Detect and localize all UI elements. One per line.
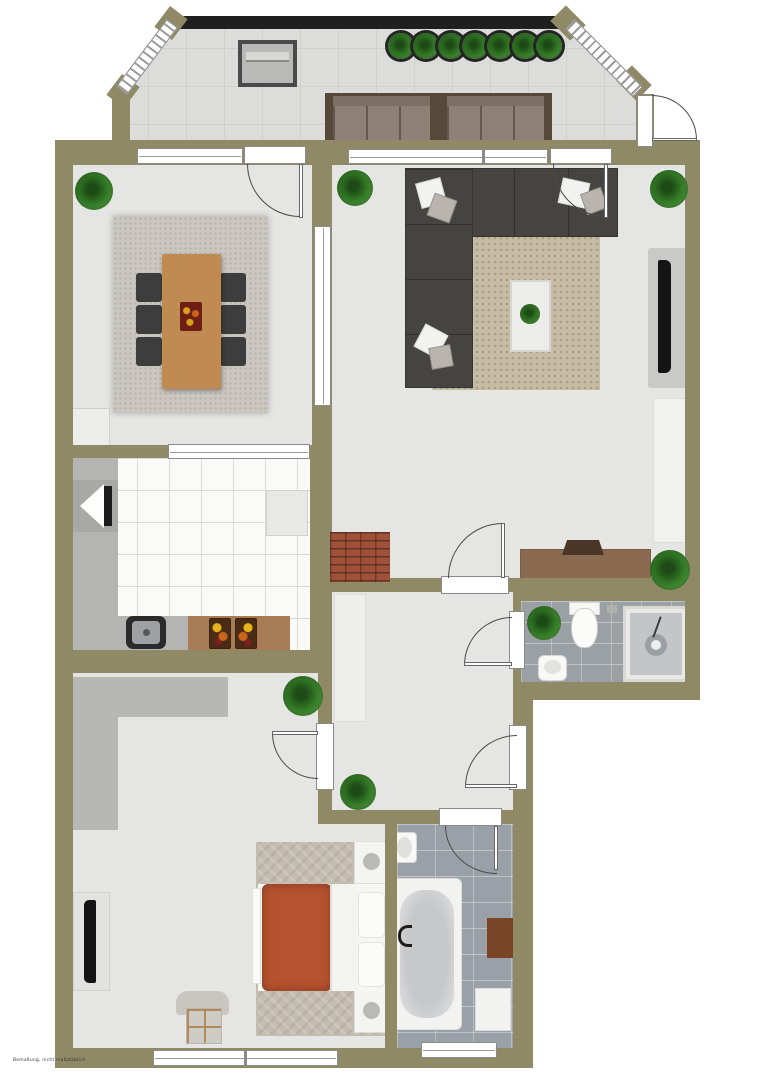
bed-pillow [358,942,385,987]
wc-bottom-wall [513,682,700,700]
laptop-icon [562,540,604,555]
cutting-board [235,618,257,649]
coffee-table-flowers [520,304,540,324]
cutting-board [209,618,231,649]
bathroom-sink-bowl [397,837,412,858]
storage-box-lid [246,52,289,62]
storage-box [238,40,297,87]
exterior-wall-right [685,140,700,700]
bedroom-door-frame [316,723,334,790]
bath-mat [487,918,513,958]
dining-chair [220,273,246,302]
nightstand-lamp [363,1002,380,1019]
outdoor-sofa-cushions [333,96,430,144]
outdoor-sofa-cushions [447,96,544,144]
dining-living-interior-window [314,226,331,406]
bedroom-door-leaf [272,731,318,735]
balcony-side-door-arc [652,95,697,140]
exterior-wall-left [55,140,73,1068]
tv-icon [658,260,671,373]
bathroom-window [421,1042,497,1058]
balcony-railing [180,16,563,29]
nightstand-lamp [363,853,380,870]
bathtub-faucet [398,925,412,947]
bathroom-door-leaf [494,826,498,870]
kitchen-living-wall [310,458,332,650]
washing-machine [475,988,511,1031]
bedroom-tv-icon [84,900,96,983]
dining-chair [136,273,162,302]
living-balcony-window [348,149,548,164]
bed-pillow [358,892,385,938]
dining-chair [136,337,162,366]
balcony-side-door-leaf [652,138,697,141]
window-mullion [482,149,485,164]
potted-plant [487,33,513,59]
kitchen-faucet [143,629,150,636]
potted-plant [462,33,488,59]
dining-balcony-door-leaf [299,164,303,218]
table-centerpiece [180,302,202,331]
dining-balcony-window [137,148,243,164]
bed-footboard [252,888,261,984]
potted-plant [413,33,439,59]
bathroom-door-frame [439,808,502,826]
dining-chair [220,305,246,334]
kitchen-bedroom-wall [55,650,332,673]
sofa-pillow [428,344,453,369]
potted-plant [512,33,538,59]
entrance-door-leaf [465,784,517,788]
hallway-plant [340,774,376,810]
dining-plant [75,172,113,210]
living-plant [650,170,688,208]
brick-chimney [330,532,390,582]
bedroom-bathroom-wall [385,822,397,1048]
toilet-bowl [571,608,598,648]
window-mullion [244,1050,247,1066]
hallway-closet [334,594,366,722]
bedroom-plant [283,676,323,716]
living-plant [337,170,373,206]
living-hallway-door-leaf [501,523,505,578]
dining-cabinet [72,408,110,448]
shower-head-center [651,640,661,650]
living-balcony-door-leaf [604,164,608,218]
living-balcony-door-frame [550,148,612,164]
armchair-seat [186,1008,222,1044]
potted-plant [438,33,464,59]
kitchen-appliance-cone [80,484,104,528]
balcony-side-door-frame [637,95,653,147]
dining-balcony-door-frame [244,146,306,164]
wc-door-leaf [464,662,512,666]
dining-chair [136,305,162,334]
potted-plant [536,33,562,59]
dining-chair [220,337,246,366]
floor-plan: Bemaßung, nicht maßstäblich [0,0,763,1080]
living-plant [650,550,690,590]
dining-kitchen-interior-window [168,444,310,459]
wc-plant [527,606,561,640]
wall-shelf [653,398,686,543]
potted-plant [388,33,414,59]
bed-sheet-fold [330,884,357,991]
watermark-text: Bemaßung, nicht maßstäblich [13,1058,86,1063]
bedroom-wardrobe-l [73,677,118,830]
kitchen-appliance-bar [104,486,112,526]
wc-shelf-box [607,605,617,613]
fridge [266,490,308,536]
wc-basin-bowl [544,660,561,674]
bathtub-basin [400,890,454,1018]
living-hallway-door-frame [441,576,509,594]
bed-duvet [262,884,332,991]
